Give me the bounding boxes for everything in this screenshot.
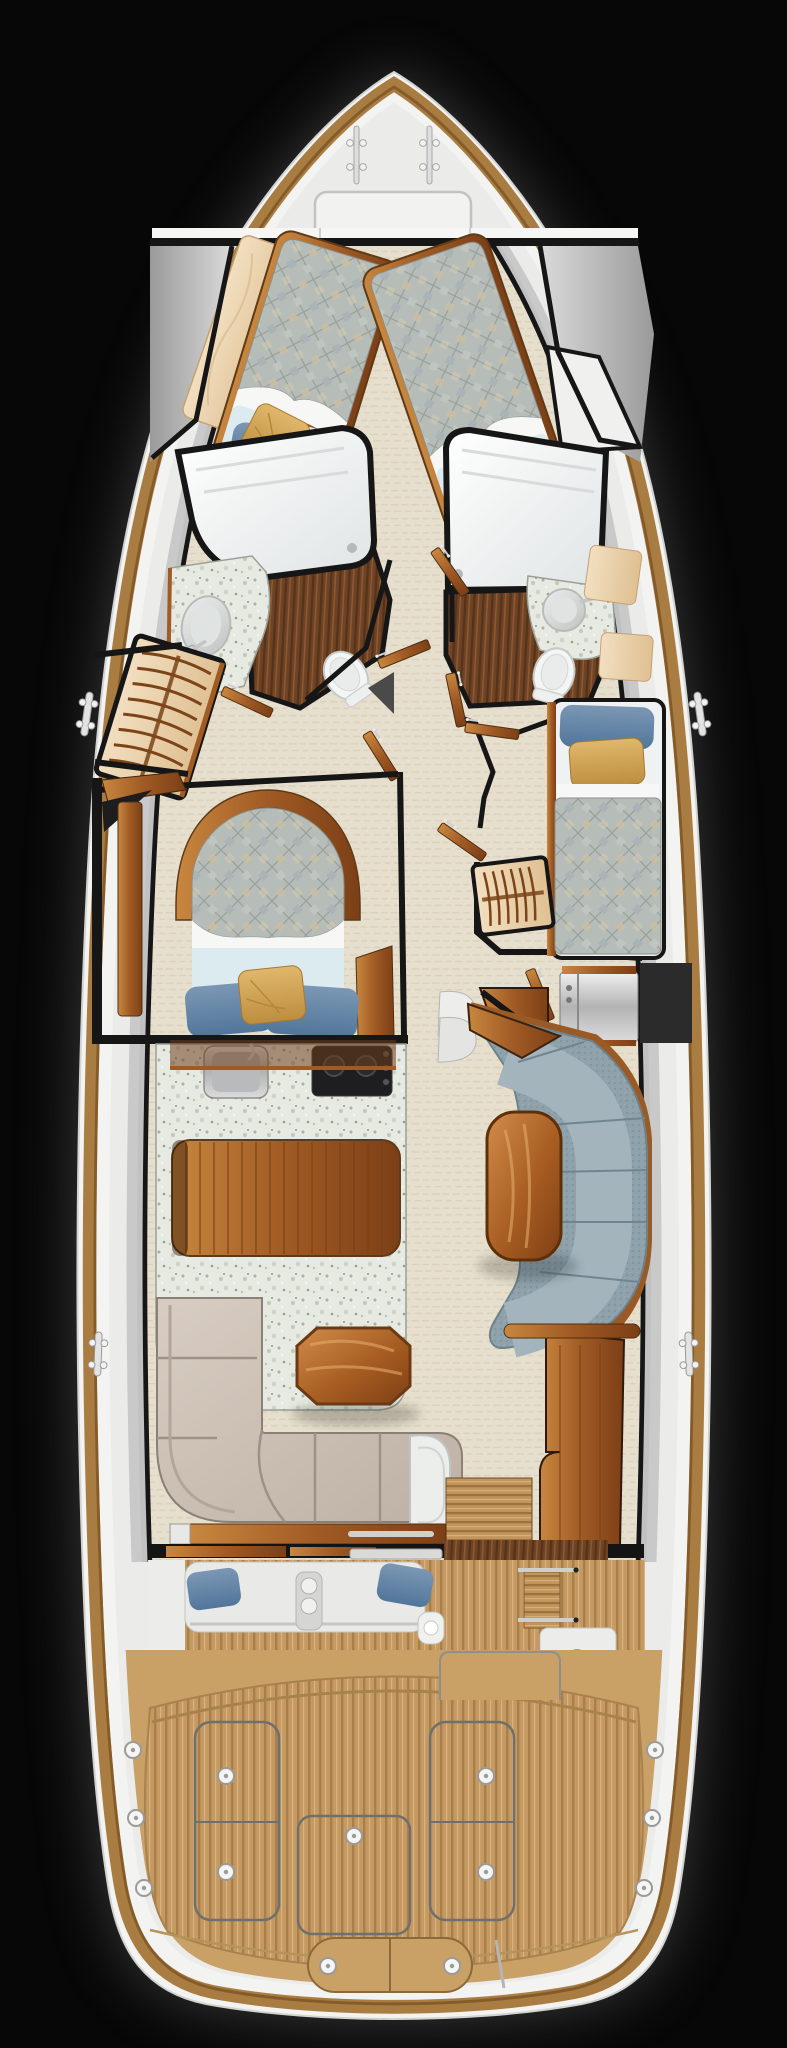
dinette-table: [487, 1112, 561, 1260]
cabinet: [583, 545, 642, 606]
sliding-door: [350, 1549, 442, 1559]
side-molding: [148, 1560, 186, 1660]
cleat: [688, 691, 713, 737]
galley-wood-inset: [172, 1140, 400, 1256]
shower: [446, 430, 606, 590]
gold-pillow: [568, 737, 645, 788]
door-track: [348, 1531, 434, 1537]
salon: [157, 1298, 640, 1546]
handrail: [504, 1324, 640, 1338]
yacht-floorplan-image: [0, 0, 787, 2048]
step-floor: [446, 1478, 532, 1542]
aft-cabinet: [540, 1332, 624, 1545]
gold-pillow: [237, 965, 306, 1025]
blue-pillow: [185, 1567, 242, 1612]
step-recess: [440, 1652, 560, 1700]
quilt: [555, 798, 661, 954]
floorplan-svg: [0, 0, 787, 2048]
shower-drain: [347, 543, 357, 553]
berth-side-board: [356, 946, 394, 1036]
cleat: [75, 691, 100, 737]
shower: [178, 428, 374, 578]
locker-dark: [640, 963, 692, 1043]
hanging-locker-guest: [472, 857, 554, 935]
forward-bulkhead-wall: [150, 238, 639, 246]
corner-post: [170, 1524, 190, 1544]
raised-bar-top: [170, 1040, 396, 1068]
berth-side-board: [118, 802, 142, 1016]
cabinet: [598, 632, 653, 682]
